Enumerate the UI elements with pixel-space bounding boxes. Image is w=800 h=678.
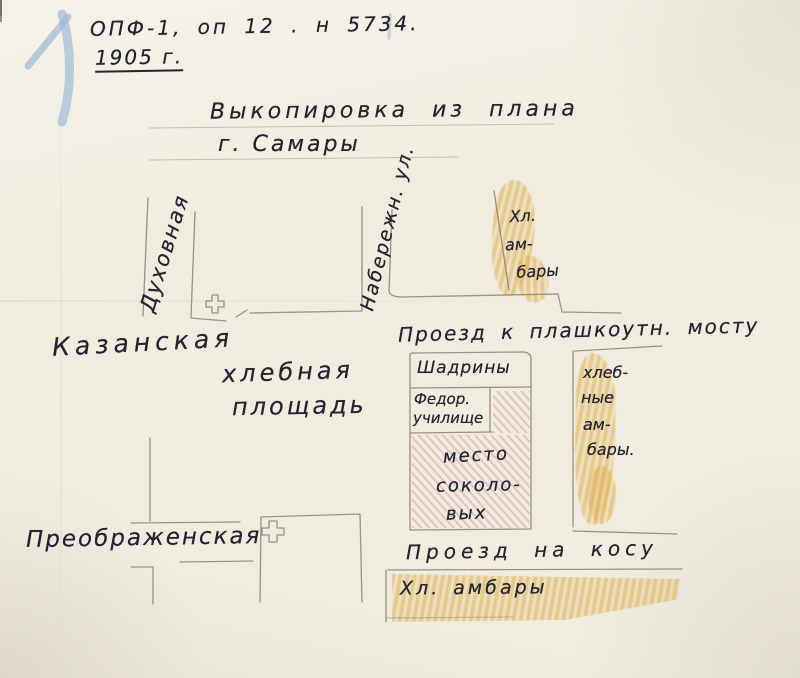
top-barns-line: бары: [516, 257, 560, 287]
right-barns-line: хлеб-: [583, 360, 635, 385]
gap-tick: [236, 310, 247, 317]
sokolov-plot-line1: место: [443, 445, 510, 466]
top-barns-line: ам-: [504, 229, 558, 260]
scanned-map-document: ОПФ-1, оп 12 . н 5734. 1905 г. Выкопиров…: [0, 0, 800, 678]
school-label-line1: Федор.: [414, 392, 470, 407]
church-cross-icon: [262, 521, 284, 542]
top-barns-line: Хл.: [509, 201, 557, 231]
right-barns-line: ам-: [583, 412, 635, 437]
bottom-barns-faint-line: [386, 617, 513, 618]
shadrin-inner-line: [410, 387, 531, 388]
preobrazhenskaya-north-line: [131, 438, 240, 523]
shadrin-owner-label: Шадрины: [417, 360, 511, 377]
map-title-line2: г. Самары: [218, 134, 361, 156]
street-line-dukhovnaya-east: [191, 212, 226, 321]
sokolov-plot-line3: вых: [446, 504, 488, 523]
preobrazhenskaya-south-line: [131, 561, 253, 604]
sokolov-plot-line2: соколо-: [436, 476, 522, 495]
archive-reference: ОПФ-1, оп 12 . н 5734.: [90, 13, 420, 39]
square-label-khlebnaya-line2: площадь: [232, 393, 367, 419]
bottom-barns-label: Хл. амбары: [400, 578, 548, 598]
right-barns-label: хлеб- ные ам- бары.: [581, 360, 635, 462]
top-barns-label: Хл. ам- бары: [503, 201, 560, 288]
square-label-khlebnaya-line1: хлебная: [222, 358, 355, 387]
year-label: 1905 г.: [95, 46, 184, 73]
street-label-proezd-kosa: Проезд на косу: [406, 538, 658, 562]
right-barns-line: бары.: [587, 437, 635, 462]
church-cross-icon: [206, 295, 224, 313]
church-block-outline: [260, 514, 362, 602]
map-title-line1: Выкопировка из плана: [210, 98, 579, 123]
block-line-naberezhnaya-west: [250, 207, 362, 313]
school-label-line2: училище: [413, 411, 483, 426]
street-label-preobrazhenskaya: Преображенская: [26, 525, 262, 552]
right-barns-line: ные: [581, 385, 635, 410]
